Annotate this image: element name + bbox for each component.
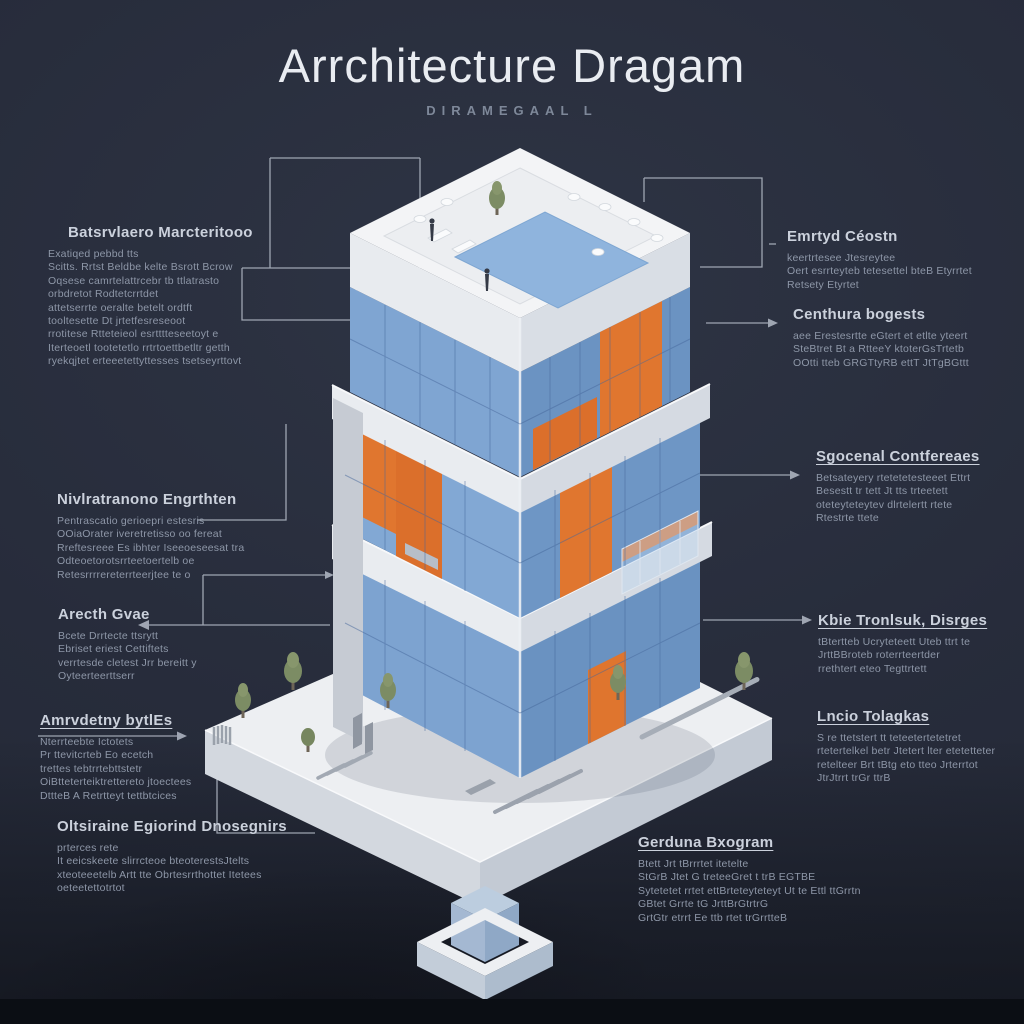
annotation-line: prterces rete [57, 842, 287, 855]
annotation-right-5: Lncio Tolagkas S re ttetstert tt teteete… [817, 708, 995, 786]
annotation-line: Oqsese camrtelattrcebr tb ttlatrasto [48, 275, 253, 288]
annotation-line: Pentrascatio gerioepri estesris [57, 515, 244, 528]
page-subtitle: DIRAMEGAAL L [0, 103, 1024, 118]
annotation-left-5: Oltsiraine Egiorind Dnosegnirs prterces … [57, 818, 287, 896]
annotation-line: Ebriset eriest Cettiftets [58, 643, 197, 656]
annotation-line: oteteyteteytev dlrtelertt rtete [816, 499, 980, 512]
annotation-line: Sytetetet rrtet ettBrteteyteteyt Ut te E… [638, 885, 861, 898]
annotation-line: SteBtret Bt a RtteeY ktoterGsTrtetb [793, 343, 969, 356]
annotation-line: JtrJtrrt trGr ttrB [817, 772, 995, 785]
annotation-line: verrtesde cletest Jrr bereitt y [58, 657, 197, 670]
annotation-line: Rreftesreee Es ibhter Iseeoeseesat tra [57, 542, 244, 555]
annotation-heading: Amrvdetny bytlEs [40, 712, 191, 729]
annotation-line: DttteB A Retrtteyt tettbtcices [40, 790, 191, 803]
annotation-line: Iterteoetl tootetetlo rrtrtoettbetltr ge… [48, 342, 253, 355]
annotation-line: GrtGtr etrrt Ee ttb rtet trGrrtteB [638, 912, 861, 925]
annotation-line: OOiaOrater iveretretisso oo fereat [57, 528, 244, 541]
annotation-line: StGrB Jtet G treteeGret t trB EGTBE [638, 871, 861, 884]
annotation-line: GBtet Grrte tG JrttBrGtrtrG [638, 898, 861, 911]
annotation-line: Rtestrte ttete [816, 512, 980, 525]
annotation-line: Bcete Drrtecte ttsrytt [58, 630, 197, 643]
annotation-line: rtetertelkel betr Jtetert lter etetettet… [817, 745, 995, 758]
annotation-left-3: Arecth Gvae Bcete Drrtecte ttsrytt Ebris… [58, 606, 197, 684]
annotation-line: Pr ttevitcrteb Eo ecetch [40, 749, 191, 762]
annotation-heading: Oltsiraine Egiorind Dnosegnirs [57, 818, 287, 835]
annotation-right-3: Sgocenal Contfereaes Betsateyery rtetete… [816, 448, 980, 526]
annotation-heading: Centhura bogests [793, 306, 969, 323]
corner-pier [333, 398, 363, 742]
annotation-line: tBtertteb Ucryteteett Uteb ttrt te [818, 636, 987, 649]
annotation-right-2: Centhura bogests aee Erestesrtte eGtert … [793, 306, 969, 370]
annotation-line: Retesrrrrereterrteerjtee te o [57, 569, 244, 582]
annotation-line: Btett Jrt tBrrrtet itetelte [638, 858, 861, 871]
annotation-left-2: Nivlratranono Engrthten Pentrascatio ger… [57, 491, 244, 582]
annotation-heading: Kbie Tronlsuk, Disrges [818, 612, 987, 629]
annotation-line: keertrtesee Jtesreytee [787, 252, 972, 265]
annotation-line: Betsateyery rtetetetesteeet Ettrt [816, 472, 980, 485]
annotation-line: oeteetettotrtot [57, 882, 287, 895]
annotation-bottom: Gerduna Bxogram Btett Jrt tBrrrtet itete… [638, 834, 861, 925]
annotation-line: Nterrteebte Ictotets [40, 736, 191, 749]
annotation-line: It eeicskeete slirrcteoe bteoterestsJtel… [57, 855, 287, 868]
annotation-left-4: Amrvdetny bytlEs Nterrteebte Ictotets Pr… [40, 712, 191, 803]
annotation-right-1: Emrtyd Céostn keertrtesee Jtesreytee Oer… [787, 228, 972, 292]
annotation-line: rrotitese Rtteteieol esrtttteseetoyt e [48, 328, 253, 341]
annotation-line: Besestt tr tett Jt tts trteetett [816, 485, 980, 498]
annotation-line: aee Erestesrtte eGtert et etlte yteert [793, 330, 969, 343]
annotation-line: Retsety Etyrtet [787, 279, 972, 292]
annotation-right-4: Kbie Tronlsuk, Disrges tBtertteb Ucrytet… [818, 612, 987, 676]
page-title: Arrchitecture Dragam [0, 38, 1024, 93]
annotation-heading: Gerduna Bxogram [638, 834, 861, 851]
infographic-canvas: Arrchitecture Dragam DIRAMEGAAL L Batsrv… [0, 0, 1024, 1024]
annotation-line: Scitts. Rrtst Beldbe kelte Bsrott Bcrow [48, 261, 253, 274]
annotation-heading: Arecth Gvae [58, 606, 197, 623]
annotation-line: ryekqjtet erteeetettyttesses tsetseyrtto… [48, 355, 253, 368]
annotation-heading: Batsrvlaero Marcteritooo [68, 224, 253, 241]
annotation-line: JrttBBroteb roterrteertder [818, 649, 987, 662]
annotation-heading: Emrtyd Céostn [787, 228, 972, 245]
title-block: Arrchitecture Dragam DIRAMEGAAL L [0, 38, 1024, 118]
annotation-line: trettes tebtrrtebttstetr [40, 763, 191, 776]
pedestal-cube [417, 886, 553, 1000]
annotation-heading: Sgocenal Contfereaes [816, 448, 980, 465]
annotation-line: Exatiqed pebbd tts [48, 248, 253, 261]
annotation-heading: Nivlratranono Engrthten [57, 491, 244, 508]
bottom-dark-strip [0, 999, 1024, 1024]
annotation-heading: Lncio Tolagkas [817, 708, 995, 725]
annotation-left-1: Batsrvlaero Marcteritooo Exatiqed pebbd … [48, 224, 253, 369]
annotation-line: OiBtteterteiktrettereto jtoectees [40, 776, 191, 789]
annotation-line: orbdretot Rodtetcrrtdet [48, 288, 253, 301]
annotation-line: S re ttetstert tt teteetertetetret [817, 732, 995, 745]
annotation-line: Oyteerteerttserr [58, 670, 197, 683]
annotation-line: xteoteeetelb Artt tte Obrtesrrthottet It… [57, 869, 287, 882]
annotation-line: tooltesette Dt jrtetfesreseoot [48, 315, 253, 328]
annotation-line: OOtti tteb GRGTtyRB ettT JtTgBGttt [793, 357, 969, 370]
annotation-line: retelteer Brt tBtg eto tteo Jrterrtot [817, 759, 995, 772]
annotation-line: rrethtert eteo Tegttrtett [818, 663, 987, 676]
annotation-line: Odteoetorotsrrteetoertelb oe [57, 555, 244, 568]
annotation-line: attetserrte oeralte betelt ordtft [48, 302, 253, 315]
annotation-line: Oert esrrteyteb tetesettel bteB Etyrrtet [787, 265, 972, 278]
